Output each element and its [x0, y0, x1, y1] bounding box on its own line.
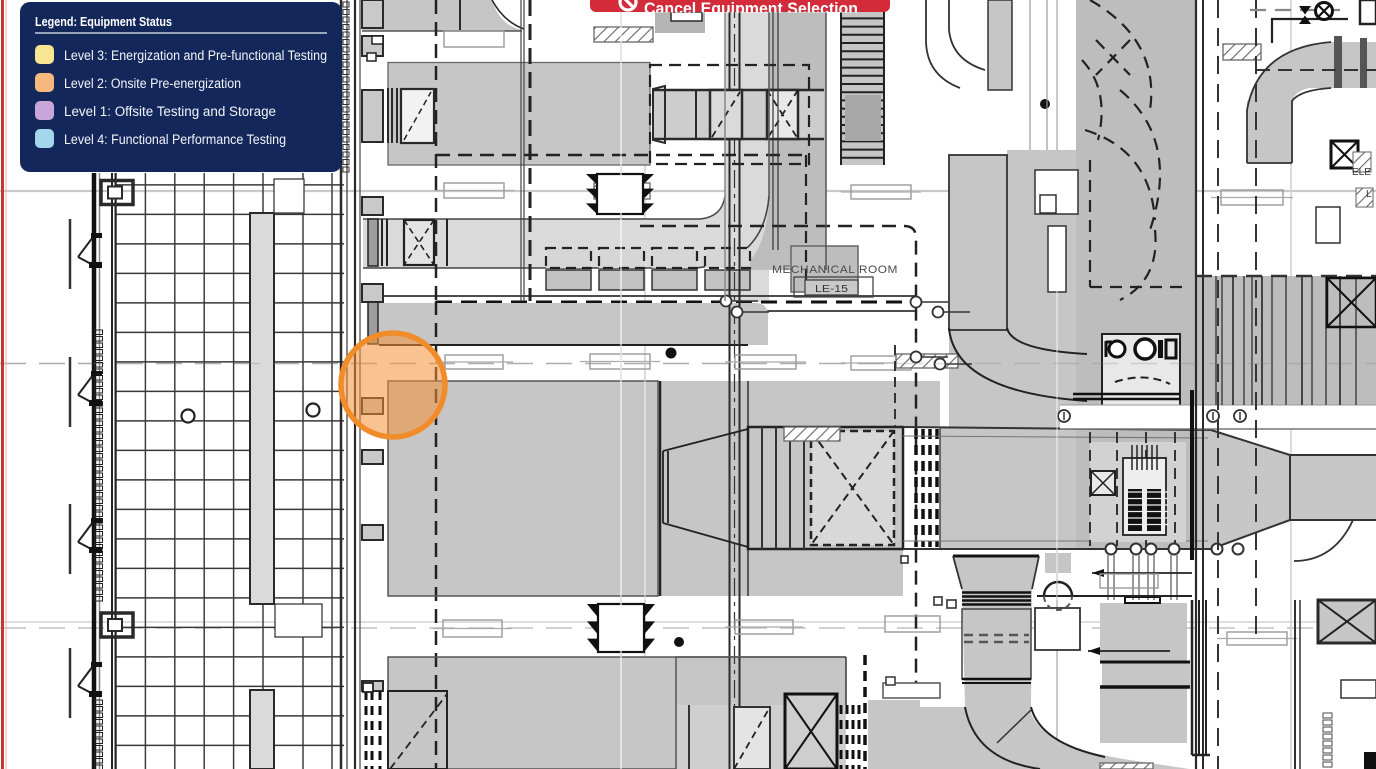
- svg-text:Level 4: Functional Performanc: Level 4: Functional Performance Testing: [64, 132, 286, 148]
- svg-text:Level 3: Energization and Pre-: Level 3: Energization and Pre-functional…: [64, 48, 327, 64]
- svg-text:LE-15: LE-15: [815, 284, 849, 295]
- svg-text:Legend: Equipment Status: Legend: Equipment Status: [35, 14, 172, 29]
- svg-text:ELE: ELE: [1352, 167, 1371, 178]
- svg-text:Level 1: Offsite Testing and S: Level 1: Offsite Testing and Storage: [64, 104, 276, 120]
- svg-text:L: L: [1366, 189, 1372, 200]
- svg-text:MECHANICAL ROOM: MECHANICAL ROOM: [772, 264, 898, 276]
- svg-text:Level 2: Onsite Pre-energizati: Level 2: Onsite Pre-energization: [64, 76, 241, 92]
